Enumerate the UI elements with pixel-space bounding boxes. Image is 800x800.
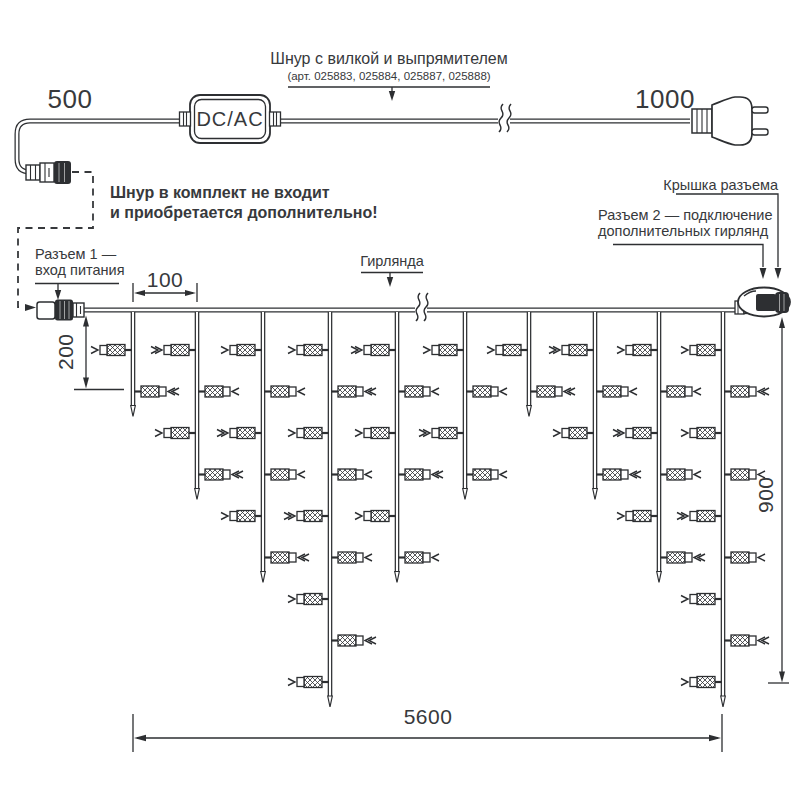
cord-note: Шнур в комплект не входит и приобретаетс… <box>110 183 378 222</box>
dimension-500-label: 500 <box>38 85 102 114</box>
lamp-icon <box>617 345 658 356</box>
cord-title-label: Шнур с вилкой и выпрямителем <box>268 50 510 68</box>
lamp-icon <box>660 469 701 480</box>
diagram-line-art <box>0 0 800 800</box>
garland-drop <box>463 312 468 500</box>
lamp-icon <box>288 345 329 356</box>
cord-wire-break <box>498 104 511 132</box>
lamp-icon <box>331 469 372 480</box>
lamp-icon <box>487 345 528 356</box>
lamp-icon <box>198 386 239 397</box>
lamp-icon <box>331 552 372 563</box>
dc-ac-adapter-label: DC/AC <box>190 108 270 130</box>
lamp-icon <box>264 469 305 480</box>
garland-drop <box>593 312 598 500</box>
lamp-icon <box>155 428 196 439</box>
connector2-label: Разъем 2 — подключение дополнительных ги… <box>598 207 764 239</box>
connector1-label-line2: вход питания <box>35 262 124 278</box>
cord-articles-label: (арт. 025883, 025884, 025887, 025888) <box>268 70 510 83</box>
input-connector <box>37 300 84 321</box>
lamp-icon <box>217 428 262 439</box>
connector1-label: Разъем 1 — вход питания <box>35 246 124 278</box>
lamp-icon <box>681 677 722 688</box>
lamp-icon <box>596 469 641 480</box>
cord-note-line2: и приобретается дополнительно! <box>110 203 378 223</box>
lamp-icon <box>264 552 309 563</box>
lamp-icon <box>355 511 396 522</box>
garland-wire-break <box>415 293 428 321</box>
lamp-icon <box>681 345 722 356</box>
lamp-icon <box>288 677 329 688</box>
lamp-icon <box>355 428 396 439</box>
garland-spec-diagram: Шнур с вилкой и выпрямителем (арт. 02588… <box>0 0 800 800</box>
lamp-icon <box>530 386 575 397</box>
lamp-icon <box>284 511 329 522</box>
lamp-icon <box>151 345 196 356</box>
garland-drop <box>395 312 400 583</box>
power-plug-icon <box>692 97 768 145</box>
lamp-icon <box>221 511 262 522</box>
lamp-icon <box>466 386 507 397</box>
lamp-icon <box>466 469 507 480</box>
lamp-icon <box>423 345 464 356</box>
lamp-icon <box>724 386 769 397</box>
lamp-icon <box>681 428 722 439</box>
garland-drop <box>328 312 333 707</box>
lamp-icon <box>288 594 329 605</box>
garland-drop <box>527 312 532 417</box>
lamp-icon <box>221 345 262 356</box>
lamp-icon <box>288 428 329 439</box>
lamp-icon <box>398 469 443 480</box>
lamp-icon <box>724 552 765 563</box>
lamp-icon <box>331 386 376 397</box>
lamp-icon <box>617 511 658 522</box>
dimension-5600-label: 5600 <box>392 705 464 729</box>
dimension-900-label: 900 <box>754 465 778 525</box>
lamp-icon <box>351 345 396 356</box>
lamp-icon <box>553 428 594 439</box>
output-connector <box>735 288 790 317</box>
lamp-icon <box>596 386 637 397</box>
garland-drop <box>261 312 266 583</box>
connector2-label-line2: дополнительных гирлянд <box>598 223 764 239</box>
dimension-100-label: 100 <box>135 268 195 292</box>
lamp-icon <box>677 511 722 522</box>
lamp-icon <box>331 635 376 646</box>
lamp-icon <box>398 552 439 563</box>
lamp-icon <box>660 552 705 563</box>
lamp-icon <box>613 428 658 439</box>
cord-end-connector <box>26 161 71 184</box>
lamp-icon <box>549 345 594 356</box>
lamp-icon <box>91 345 132 356</box>
lamp-icon <box>724 635 769 646</box>
lamp-icon <box>264 386 305 397</box>
garland-drop <box>131 312 136 417</box>
garland-drop <box>195 312 200 500</box>
connector-cap-label: Крышка разъема <box>646 177 778 193</box>
lamp-icon <box>681 594 722 605</box>
garland-drop <box>657 312 662 583</box>
lamp-icon <box>198 469 243 480</box>
cord-note-line1: Шнур в комплект не входит <box>110 183 378 203</box>
dimension-1000-label: 1000 <box>631 85 699 114</box>
lamp-icon <box>419 428 464 439</box>
garland-label: Гирлянда <box>352 253 432 269</box>
power-cord <box>17 121 690 172</box>
garland-drop <box>721 312 726 707</box>
lamp-icon <box>660 386 701 397</box>
lamp-icon <box>134 386 179 397</box>
connector2-label-line1: Разъем 2 — подключение <box>598 207 764 223</box>
dimension-200-label: 200 <box>54 322 78 382</box>
connector1-label-line1: Разъем 1 — <box>35 246 124 262</box>
lamp-icon <box>398 386 439 397</box>
